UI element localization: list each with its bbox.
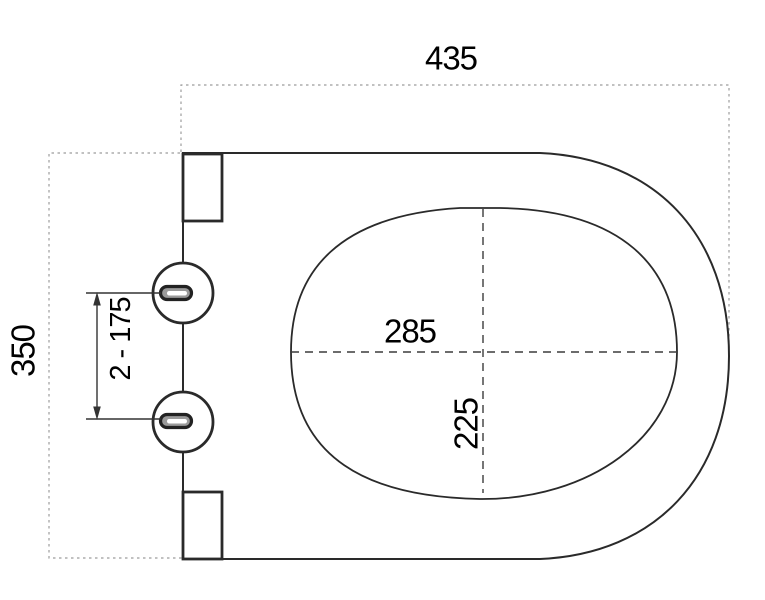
overall-width-label: 435 — [425, 40, 477, 77]
hinge-slot-top-highlight — [167, 291, 187, 296]
technical-drawing: 435 350 2 - 175 285 225 — [0, 0, 765, 600]
hinge-bracket-bottom — [183, 492, 222, 559]
seat-outer-outline — [183, 153, 729, 559]
drawing-canvas: 435 350 2 - 175 285 225 — [0, 0, 765, 600]
hinge-spacing-label: 2 - 175 — [105, 297, 137, 380]
inner-depth-label: 225 — [448, 398, 485, 450]
inner-width-label: 285 — [384, 313, 436, 350]
seat-body — [153, 153, 729, 559]
arrowhead-down-icon — [93, 407, 101, 421]
arrowhead-up-icon — [93, 292, 101, 306]
overall-depth-label: 350 — [5, 324, 42, 377]
hinge-bracket-top — [183, 154, 222, 221]
hinge-slot-bottom-highlight — [167, 419, 187, 424]
